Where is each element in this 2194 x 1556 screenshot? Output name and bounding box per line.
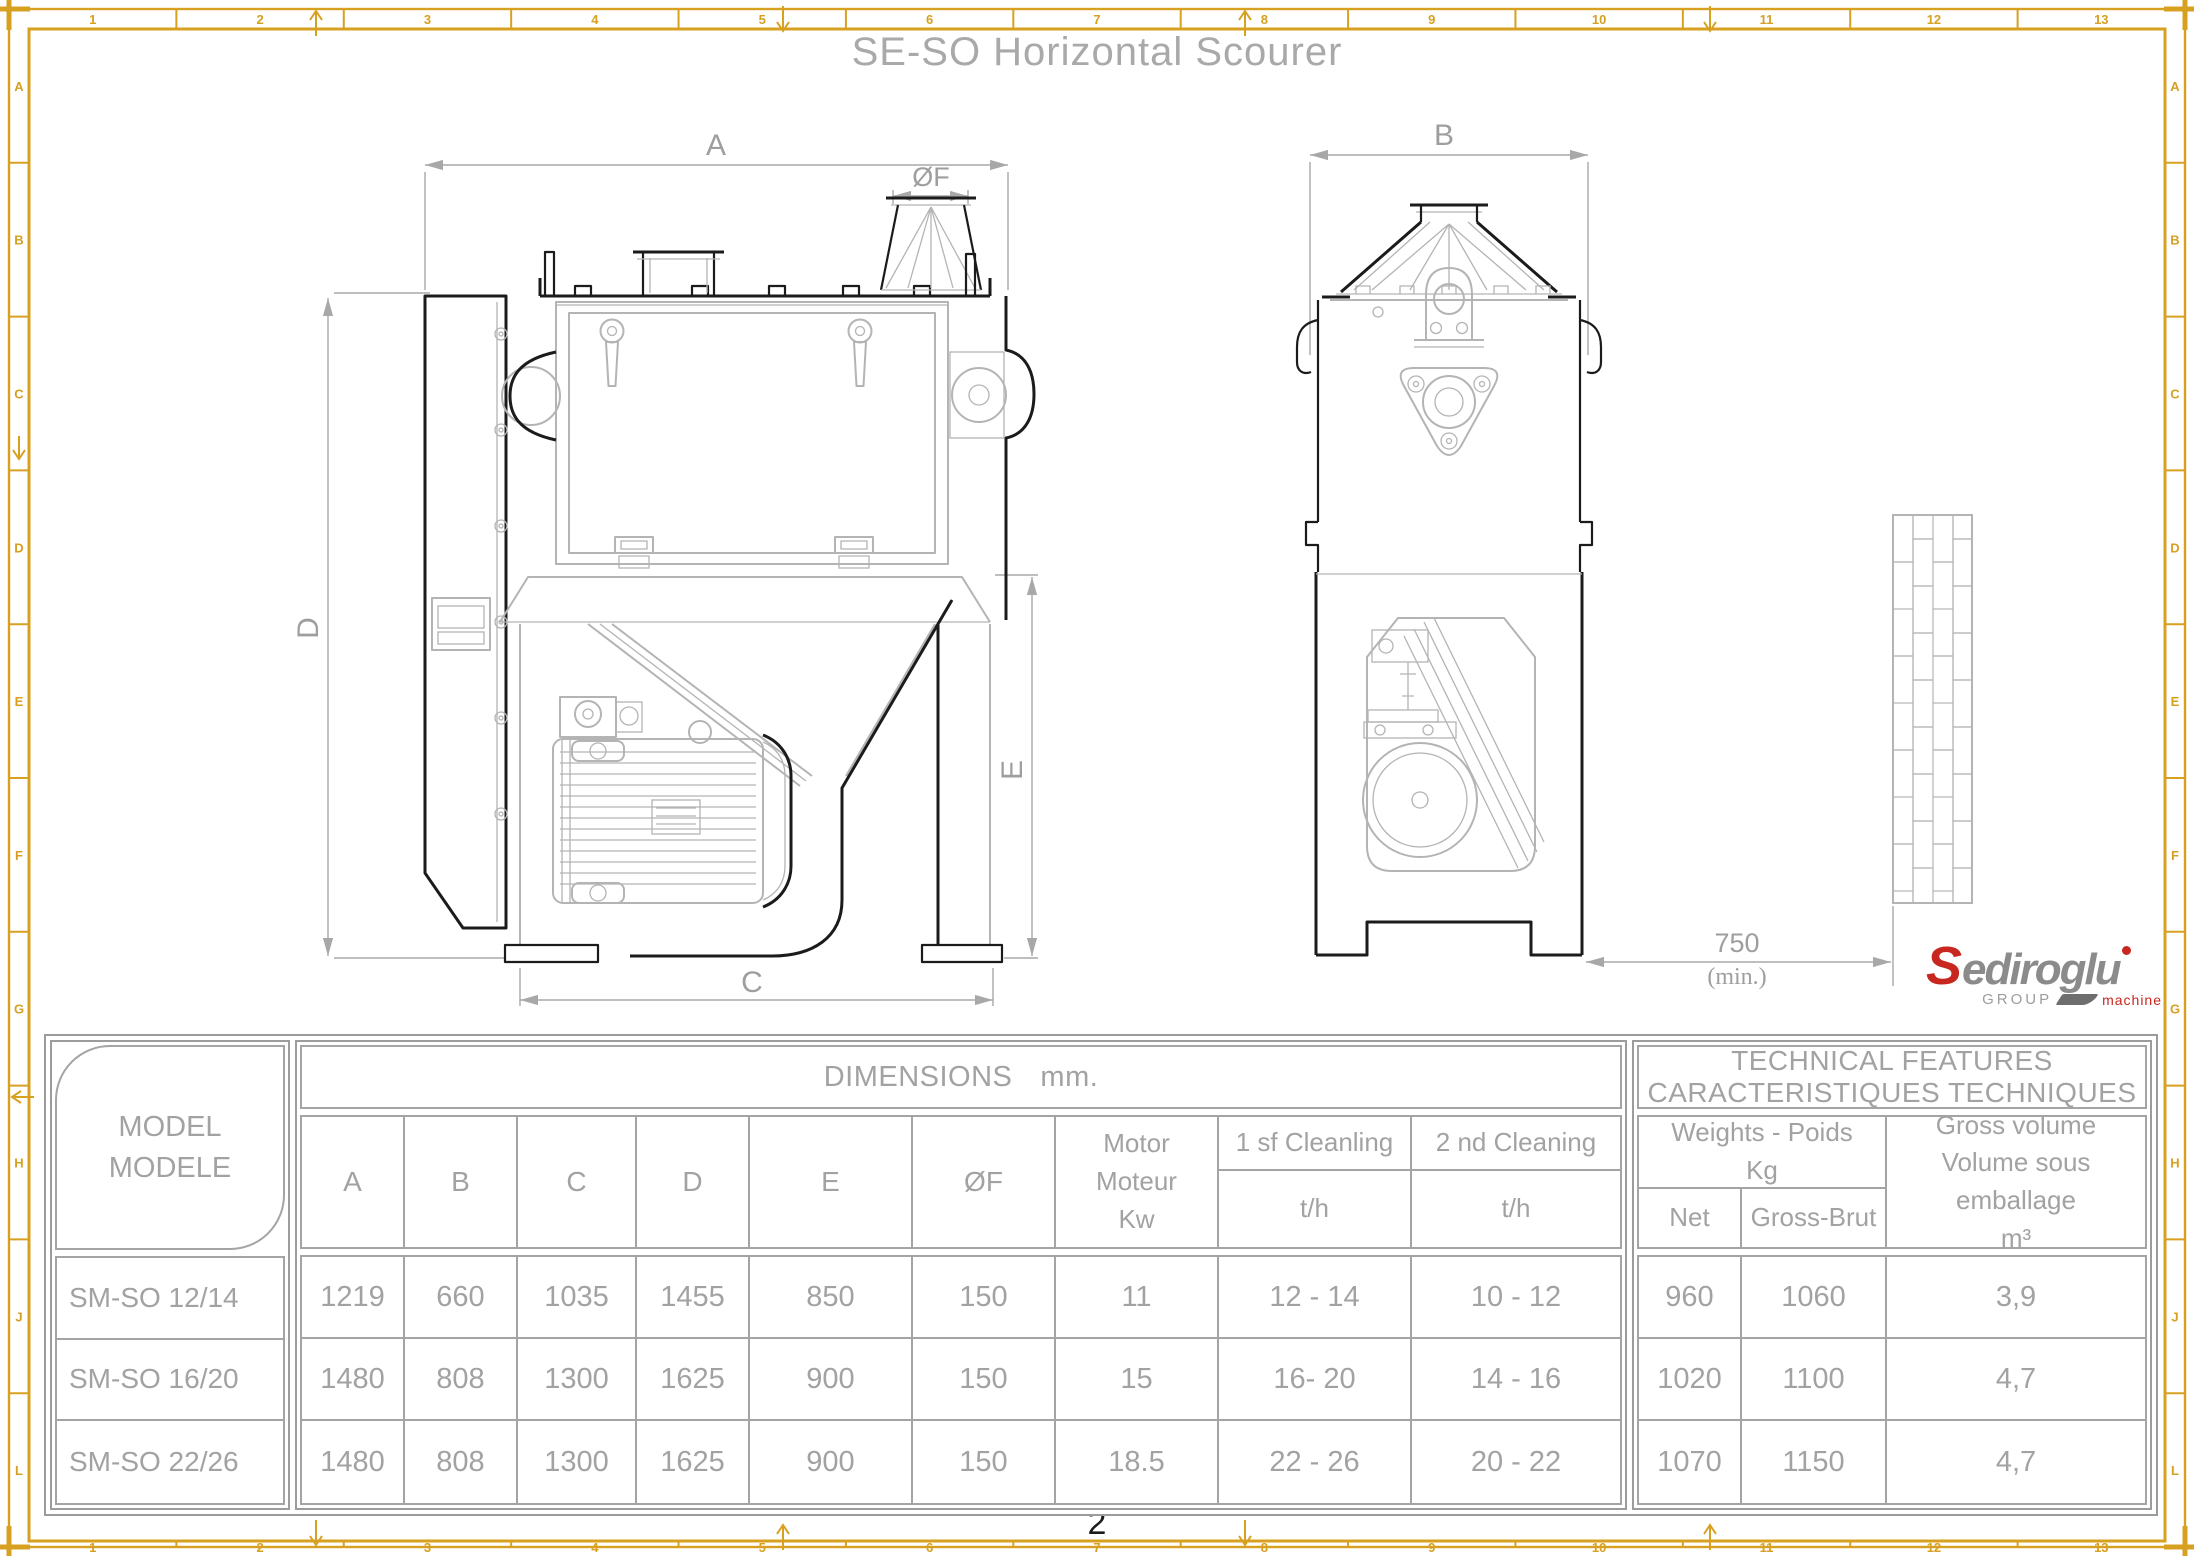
- col-header-a: A: [302, 1117, 405, 1247]
- motor-drawing: [553, 697, 791, 907]
- dim-label-e: E: [996, 760, 1029, 780]
- frame-ruler-label: H: [2170, 1156, 2179, 1171]
- col-header-f: ØF: [913, 1117, 1056, 1247]
- col-header-c: C: [518, 1117, 637, 1247]
- table-cell: 900: [750, 1421, 913, 1503]
- frame-ruler-label: 4: [591, 1540, 599, 1555]
- dimensions-data: 1219660103514558501501112 - 1410 - 12148…: [300, 1255, 1622, 1505]
- dim-label-b: B: [1434, 119, 1454, 152]
- col-header-weights: Weights - Poids Kg: [1639, 1117, 1887, 1189]
- dimensions-column-headers: A B C D E ØF Motor Moteur Kw 1 sf Cleanl…: [300, 1115, 1622, 1249]
- page-title: SE-SO Horizontal Scourer: [0, 30, 2194, 75]
- model-header-cell: MODEL MODELE: [55, 1045, 285, 1250]
- table-cell: 1625: [637, 1339, 750, 1421]
- table-cell: SM-SO 16/20: [57, 1340, 283, 1422]
- frame-ruler-label: 9: [1428, 1540, 1435, 1555]
- table-cell: 1480: [302, 1339, 405, 1421]
- drawing-sheet: { "sheet": { "title": "SE-SO Horizontal …: [0, 0, 2194, 1556]
- dimensions-label: DIMENSIONS: [824, 1061, 1013, 1094]
- volume-label-fr2: emballage: [1956, 1182, 2076, 1220]
- col-header-cleaning1: 1 sf Cleanling: [1219, 1117, 1412, 1171]
- frame-ruler-label: H: [14, 1156, 23, 1171]
- table-cell: 1100: [1742, 1339, 1887, 1421]
- dim-label-c: C: [741, 966, 763, 999]
- table-cell: 12 - 14: [1219, 1257, 1412, 1339]
- table-cell: 22 - 26: [1219, 1421, 1412, 1503]
- motor-label-fr: Moteur: [1096, 1163, 1177, 1201]
- technical-features-header-cell: TECHNICAL FEATURES CARACTERISTIQUES TECH…: [1637, 1045, 2147, 1109]
- dim-label-f: ØF: [912, 162, 950, 192]
- frame-ruler-label: C: [2170, 387, 2180, 402]
- door-handles: [601, 320, 872, 387]
- table-cell: 1300: [518, 1339, 637, 1421]
- dim-label-a: A: [706, 129, 726, 162]
- logo-swoosh-icon: [2056, 994, 2099, 1005]
- table-cell: 1150: [1742, 1421, 1887, 1503]
- col-header-d: D: [637, 1117, 750, 1247]
- cleaning2-unit: t/h: [1412, 1171, 1620, 1247]
- frame-ruler-label: 2: [256, 1540, 263, 1555]
- side-view-drawing: B: [1297, 119, 1893, 990]
- col-header-e: E: [750, 1117, 913, 1247]
- table-cell: 150: [913, 1257, 1056, 1339]
- frame-ruler-label: A: [2170, 79, 2180, 94]
- frame-ruler-label: 10: [1592, 12, 1606, 27]
- table-cell: 660: [405, 1257, 518, 1339]
- table-cell: 1060: [1742, 1257, 1887, 1339]
- frame-ruler-label: 13: [2094, 12, 2108, 27]
- frame-ruler-label: B: [14, 233, 23, 248]
- frame-ruler-label: E: [2171, 694, 2180, 709]
- frame-ruler-label: 9: [1428, 12, 1435, 27]
- table-cell: 16- 20: [1219, 1339, 1412, 1421]
- col-header-motor: Motor Moteur Kw: [1056, 1117, 1219, 1247]
- frame-ruler-label: L: [15, 1463, 23, 1478]
- brand-logo: Sediroglu GROUP machine: [1926, 942, 2162, 1008]
- model-header-en: MODEL: [118, 1107, 221, 1148]
- dimensions-panel: DIMENSIONS mm. A B C D E ØF Motor Moteur…: [295, 1040, 1627, 1510]
- logo-initial: S: [1926, 942, 1962, 991]
- weights-unit: Kg: [1746, 1152, 1778, 1190]
- table-cell: SM-SO 22/26: [57, 1421, 283, 1503]
- technical-data: 96010603,9102011004,7107011504,7: [1637, 1255, 2147, 1505]
- frame-ruler-label: D: [14, 540, 23, 555]
- frame-ruler-label: 2: [256, 12, 263, 27]
- specification-table: MODEL MODELE SM-SO 12/14SM-SO 16/20SM-SO…: [44, 1034, 2158, 1516]
- table-cell: 808: [405, 1421, 518, 1503]
- technical-column-headers: Weights - Poids Kg Net Gross-Brut Gross …: [1637, 1115, 2147, 1249]
- frame-ruler-label: 10: [1592, 1540, 1606, 1555]
- frame-ruler-label: G: [14, 1002, 24, 1017]
- col-header-cleaning2: 2 nd Cleaning: [1412, 1117, 1620, 1171]
- table-cell: 20 - 22: [1412, 1421, 1620, 1503]
- frame-ruler-label: 4: [591, 12, 599, 27]
- frame-ruler-label: J: [2171, 1309, 2178, 1324]
- frame-ruler-label: 3: [424, 12, 431, 27]
- frame-ruler-label: 6: [926, 12, 933, 27]
- frame-ruler-label: 7: [1093, 12, 1100, 27]
- table-cell: 1480: [302, 1421, 405, 1503]
- volume-label-en: Gross volume: [1936, 1107, 2096, 1145]
- technical-features-panel: TECHNICAL FEATURES CARACTERISTIQUES TECH…: [1632, 1040, 2152, 1510]
- table-cell: 3,9: [1887, 1257, 2145, 1339]
- table-cell: 808: [405, 1339, 518, 1421]
- volume-label-fr: Volume sous: [1942, 1144, 2091, 1182]
- table-cell: 1070: [1639, 1421, 1742, 1503]
- dim-label-d: D: [292, 617, 325, 639]
- frame-ruler-label: C: [14, 387, 24, 402]
- table-cell: 4,7: [1887, 1339, 2145, 1421]
- frame-ruler-label: 6: [926, 1540, 933, 1555]
- cleaning1-unit: t/h: [1219, 1171, 1412, 1247]
- table-cell: 150: [913, 1421, 1056, 1503]
- tech-header-fr: CARACTERISTIQUES TECHNIQUES: [1647, 1077, 2136, 1109]
- frame-ruler-label: 5: [759, 12, 766, 27]
- model-rows: SM-SO 12/14SM-SO 16/20SM-SO 22/26: [55, 1256, 285, 1505]
- frame-ruler-label: F: [2171, 848, 2179, 863]
- frame-ruler-label: 8: [1261, 1540, 1268, 1555]
- dim-label-clearance-min: (min.): [1707, 964, 1766, 990]
- table-cell: 11: [1056, 1257, 1219, 1339]
- table-cell: 1219: [302, 1257, 405, 1339]
- table-cell: 1300: [518, 1421, 637, 1503]
- col-header-volume: Gross volume Volume sous emballage m³: [1887, 1117, 2145, 1247]
- model-column-panel: MODEL MODELE SM-SO 12/14SM-SO 16/20SM-SO…: [50, 1040, 290, 1510]
- col-header-net: Net: [1639, 1189, 1742, 1247]
- wall-section-hatch: [1893, 515, 1972, 903]
- frame-ruler-label: E: [15, 694, 24, 709]
- table-cell: 960: [1639, 1257, 1742, 1339]
- frame-ruler-label: 12: [1927, 12, 1941, 27]
- table-cell: SM-SO 12/14: [57, 1258, 283, 1340]
- table-cell: 14 - 16: [1412, 1339, 1620, 1421]
- dimensions-header-cell: DIMENSIONS mm.: [300, 1045, 1622, 1109]
- frame-ruler-label: A: [14, 79, 24, 94]
- frame-ruler-label: L: [2171, 1463, 2179, 1478]
- frame-ruler-label: 11: [1760, 1540, 1774, 1555]
- frame-ruler-label: J: [15, 1309, 22, 1324]
- table-cell: 10 - 12: [1412, 1257, 1620, 1339]
- frame-ruler-label: 12: [1927, 1540, 1941, 1555]
- dimensions-unit: mm.: [1040, 1061, 1098, 1094]
- logo-registered-dot-icon: [2122, 946, 2131, 955]
- frame-ruler-label: 8: [1261, 12, 1268, 27]
- table-cell: 150: [913, 1339, 1056, 1421]
- frame-ruler-label: 1: [89, 12, 96, 27]
- frame-ruler-label: D: [2170, 540, 2179, 555]
- table-cell: 15: [1056, 1339, 1219, 1421]
- table-cell: 1035: [518, 1257, 637, 1339]
- frame-ruler-label: F: [15, 848, 23, 863]
- frame-ruler-label: 13: [2094, 1540, 2108, 1555]
- tech-header-en: TECHNICAL FEATURES: [1731, 1045, 2053, 1077]
- motor-label-en: Motor: [1103, 1125, 1169, 1163]
- volume-unit: m³: [2001, 1220, 2031, 1258]
- table-cell: 4,7: [1887, 1421, 2145, 1503]
- frame-ruler-label: 1: [89, 1540, 96, 1555]
- table-cell: 1625: [637, 1421, 750, 1503]
- model-header-fr: MODELE: [109, 1148, 231, 1189]
- col-header-b: B: [405, 1117, 518, 1247]
- table-cell: 1455: [637, 1257, 750, 1339]
- motor-unit: Kw: [1118, 1201, 1154, 1239]
- front-view-drawing: A ØF D E C: [292, 129, 1038, 1006]
- frame-ruler-label: 5: [759, 1540, 766, 1555]
- frame-ruler-label: B: [2170, 233, 2179, 248]
- table-cell: 900: [750, 1339, 913, 1421]
- frame-ruler-label: 11: [1760, 12, 1774, 27]
- col-header-gross: Gross-Brut: [1742, 1189, 1887, 1247]
- dim-label-clearance: 750: [1714, 928, 1759, 958]
- frame-ruler-label: G: [2170, 1002, 2180, 1017]
- table-cell: 850: [750, 1257, 913, 1339]
- weights-label: Weights - Poids: [1671, 1114, 1853, 1152]
- table-cell: 1020: [1639, 1339, 1742, 1421]
- frame-ruler-label: 3: [424, 1540, 431, 1555]
- logo-wordmark: ediroglu: [1962, 945, 2120, 995]
- table-cell: 18.5: [1056, 1421, 1219, 1503]
